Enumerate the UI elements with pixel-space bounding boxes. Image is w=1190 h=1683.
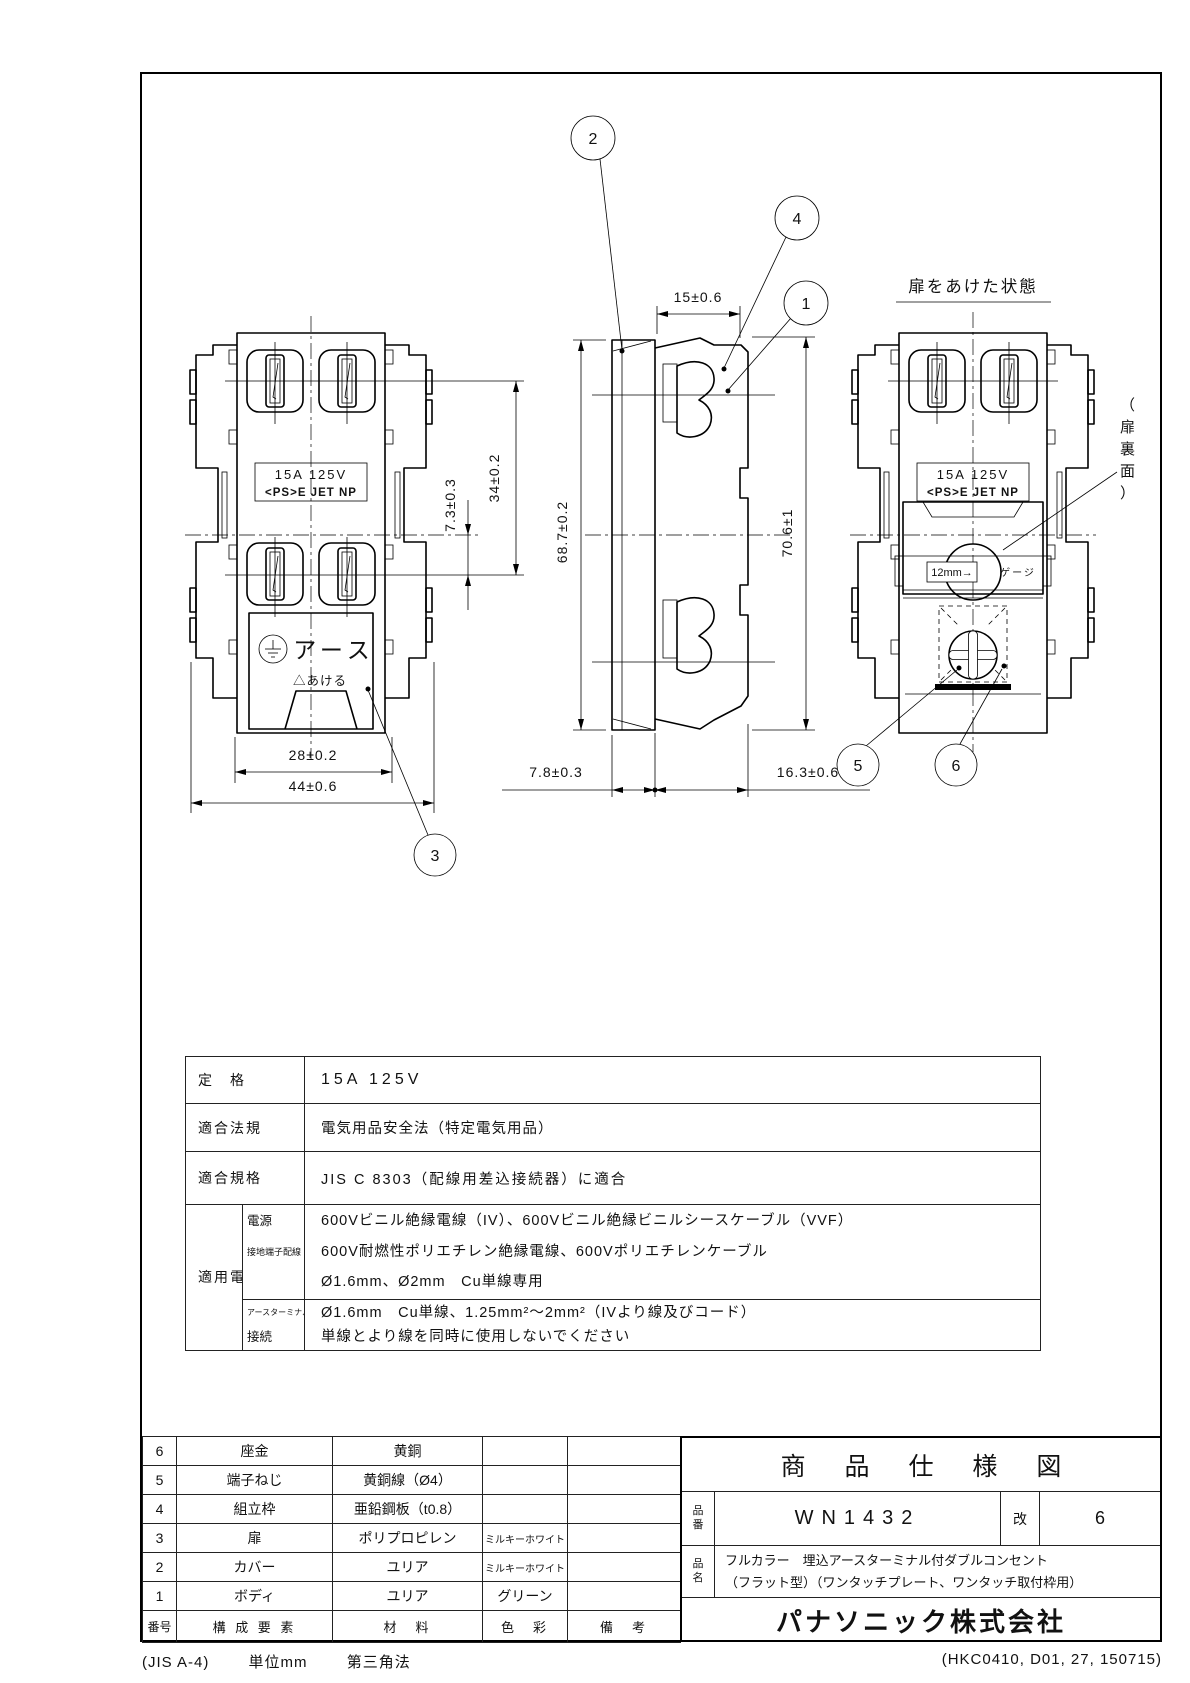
spec-label: 適合規格 xyxy=(186,1152,305,1205)
part-remarks xyxy=(568,1466,681,1495)
approval-marks-text: <PS>E JET NP xyxy=(265,487,357,499)
table-row: 定 格 15A 125V xyxy=(186,1057,1041,1104)
part-no: 1 xyxy=(143,1582,177,1611)
strip-gauge-label: ゲージ xyxy=(1000,567,1036,579)
spec-value: 電気用品安全法（特定電気用品） xyxy=(305,1104,1041,1152)
part-no-label: 品番 xyxy=(682,1492,715,1545)
unit-note: 単位mm xyxy=(249,1654,308,1671)
side-view xyxy=(585,338,792,730)
terminal-plate-edge xyxy=(935,684,1011,690)
footer-right: (HKC0410, D01, 27, 150715) xyxy=(800,1651,1162,1668)
part-material: 亜鉛鋼板（t0.8） xyxy=(333,1495,483,1524)
spec-table: 定 格 15A 125V 適合法規 電気用品安全法（特定電気用品） 適合規格 J… xyxy=(185,1056,1041,1351)
table-row: 2カバーユリアミルキーホワイト xyxy=(143,1553,681,1582)
part-color: グリーン xyxy=(483,1582,568,1611)
door-open-view: 扉をあけた状態 15A 125V <PS>E JET NP 12mm→ xyxy=(850,277,1139,752)
part-color xyxy=(483,1495,568,1524)
door-open-title: 扉をあけた状態 xyxy=(908,277,1038,296)
part-remarks xyxy=(568,1437,681,1466)
sheet-size: (JIS A-4) xyxy=(142,1654,209,1671)
part-no: 5 xyxy=(143,1466,177,1495)
table-row: 適用電線 電源 接地端子配線 600Vビニル絶縁電線（IV）、600Vビニル絶縁… xyxy=(186,1205,1041,1300)
socket-bottom-right xyxy=(319,543,375,605)
header-component: 構 成 要 素 xyxy=(177,1611,333,1643)
part-remarks xyxy=(568,1553,681,1582)
part-color xyxy=(483,1466,568,1495)
part-component: カバー xyxy=(177,1553,333,1582)
table-row: 6座金黄銅 xyxy=(143,1437,681,1466)
table-row: アースターミナル 接続 Ø1.6mm Cu単線、1.25mm²～2mm²（IVよ… xyxy=(186,1299,1041,1350)
earth-terminal-values: Ø1.6mm Cu単線、1.25mm²～2mm²（IVより線及びコード） 単線と… xyxy=(305,1299,1041,1350)
part-no: 4 xyxy=(143,1495,177,1524)
doc-title-row: 商 品 仕 様 図 xyxy=(682,1438,1160,1492)
part-no: 6 xyxy=(143,1437,177,1466)
header-color: 色 彩 xyxy=(483,1611,568,1643)
balloon-6: 6 xyxy=(952,758,961,775)
wire-values: 600Vビニル絶縁電線（IV）、600Vビニル絶縁ビニルシースケーブル（VVF）… xyxy=(305,1205,1041,1300)
mounting-yoke-left xyxy=(190,345,237,698)
balloon-3: 3 xyxy=(431,848,440,865)
part-material: ユリア xyxy=(333,1553,483,1582)
company-name: パナソニック株式会社 xyxy=(776,1602,1066,1639)
dim-height-left: 68.7±0.2 xyxy=(554,501,570,563)
spec-label: 定 格 xyxy=(186,1057,305,1104)
balloon-4: 4 xyxy=(793,211,802,228)
spec-value: 15A 125V xyxy=(305,1057,1041,1104)
table-row: 1ボディユリアグリーン xyxy=(143,1582,681,1611)
header-no: 番号 xyxy=(143,1611,177,1643)
part-no: 2 xyxy=(143,1553,177,1582)
earth-symbol-icon xyxy=(259,635,287,663)
balloon-1: 1 xyxy=(802,296,811,313)
part-component: 端子ねじ xyxy=(177,1466,333,1495)
balloon-callouts: 2 4 1 3 5 6 xyxy=(366,116,1003,876)
dim-pin-pitch: 7.3±0.3 xyxy=(442,478,458,532)
table-row: 適合法規 電気用品安全法（特定電気用品） xyxy=(186,1104,1041,1152)
part-number: WN1432 xyxy=(715,1507,1000,1530)
part-component: 座金 xyxy=(177,1437,333,1466)
parts-header-row: 番号 構 成 要 素 材 料 色 彩 備 考 xyxy=(143,1611,681,1643)
title-block: 商 品 仕 様 図 品番 WN1432 改 6 品名 フルカラー 埋込アースター… xyxy=(680,1436,1162,1642)
side-dimensions: 15±0.6 68.7±0.2 70.6±1 7.8±0.3 16.3±0.6 xyxy=(502,289,870,797)
spec-label-wires: 適用電線 xyxy=(186,1205,243,1351)
header-material: 材 料 xyxy=(333,1611,483,1643)
mounting-yoke-right xyxy=(385,345,432,698)
table-row: 3扉ポリプロピレンミルキーホワイト xyxy=(143,1524,681,1553)
part-remarks xyxy=(568,1524,681,1553)
front-dimensions: 7.3±0.3 34±0.2 28±0.2 44±0.6 xyxy=(191,381,519,813)
part-no-row: 品番 WN1432 改 6 xyxy=(682,1492,1160,1546)
part-color xyxy=(483,1437,568,1466)
approval-marks-text: <PS>E JET NP xyxy=(927,487,1019,499)
drawing-views: 15A 125V <PS>E JET NP アース △あける 7.3±0.3 xyxy=(0,0,1190,1010)
wire-sub-labels: 電源 接地端子配線 xyxy=(243,1205,305,1300)
dim-socket-span: 34±0.2 xyxy=(486,454,502,503)
rating-text: 15A 125V xyxy=(937,467,1009,482)
drawing-sheet: 15A 125V <PS>E JET NP アース △あける 7.3±0.3 xyxy=(0,0,1190,1683)
header-remarks: 備 考 xyxy=(568,1611,681,1643)
door-pull-tab xyxy=(285,691,357,729)
part-component: 組立枠 xyxy=(177,1495,333,1524)
revision-value: 6 xyxy=(1040,1508,1160,1529)
projection-note: 第三角法 xyxy=(347,1654,411,1671)
dim-depth-rear: 16.3±0.6 xyxy=(777,764,839,780)
table-row: 4組立枠亜鉛鋼板（t0.8） xyxy=(143,1495,681,1524)
part-color: ミルキーホワイト xyxy=(483,1553,568,1582)
revision-label: 改 xyxy=(1000,1492,1040,1545)
company-row: パナソニック株式会社 xyxy=(682,1598,1160,1642)
part-color: ミルキーホワイト xyxy=(483,1524,568,1553)
product-name-row: 品名 フルカラー 埋込アースターミナル付ダブルコンセント （フラット型）（ワンタ… xyxy=(682,1546,1160,1598)
socket-bottom-left xyxy=(247,543,303,605)
table-row: 適合規格 JIS C 8303（配線用差込接続器）に適合 xyxy=(186,1152,1041,1205)
mounting-claw-top xyxy=(677,362,714,437)
part-material: 黄銅 xyxy=(333,1437,483,1466)
front-view: 15A 125V <PS>E JET NP アース △あける xyxy=(185,316,524,760)
dim-cover-width: 28±0.2 xyxy=(289,747,338,763)
mounting-yoke-left xyxy=(852,345,899,698)
spec-label: 適合法規 xyxy=(186,1104,305,1152)
part-remarks xyxy=(568,1582,681,1611)
door-back-note: （ 扉 裏 面 ） xyxy=(1120,397,1139,502)
part-component: 扉 xyxy=(177,1524,333,1553)
open-label: △あける xyxy=(293,674,347,688)
product-name: フルカラー 埋込アースターミナル付ダブルコンセント （フラット型）（ワンタッチプ… xyxy=(715,1550,1160,1593)
earth-label: アース xyxy=(293,637,374,663)
dim-height-right: 70.6±1 xyxy=(779,509,795,558)
part-material: ユリア xyxy=(333,1582,483,1611)
spec-value: JIS C 8303（配線用差込接続器）に適合 xyxy=(305,1152,1041,1205)
strip-gauge-value: 12mm→ xyxy=(931,567,973,579)
parts-table: 6座金黄銅 5端子ねじ黄銅線（Ø4） 4組立枠亜鉛鋼板（t0.8） 3扉ポリプロ… xyxy=(142,1436,681,1643)
dim-depth-top: 15±0.6 xyxy=(674,289,723,305)
balloon-5: 5 xyxy=(854,758,863,775)
dim-depth-front: 7.8±0.3 xyxy=(529,764,583,780)
footer-left: (JIS A-4) 単位mm 第三角法 xyxy=(142,1651,445,1672)
rating-text: 15A 125V xyxy=(275,467,347,482)
earth-terminal-sub-labels: アースターミナル 接続 xyxy=(243,1299,305,1350)
mounting-yoke-right xyxy=(1047,345,1094,698)
part-material: ポリプロピレン xyxy=(333,1524,483,1553)
doc-title: 商 品 仕 様 図 xyxy=(765,1447,1078,1483)
part-no: 3 xyxy=(143,1524,177,1553)
balloon-2: 2 xyxy=(589,131,598,148)
product-name-label: 品名 xyxy=(682,1546,715,1597)
dim-frame-width: 44±0.6 xyxy=(289,778,338,794)
part-material: 黄銅線（Ø4） xyxy=(333,1466,483,1495)
part-component: ボディ xyxy=(177,1582,333,1611)
table-row: 5端子ねじ黄銅線（Ø4） xyxy=(143,1466,681,1495)
part-remarks xyxy=(568,1495,681,1524)
